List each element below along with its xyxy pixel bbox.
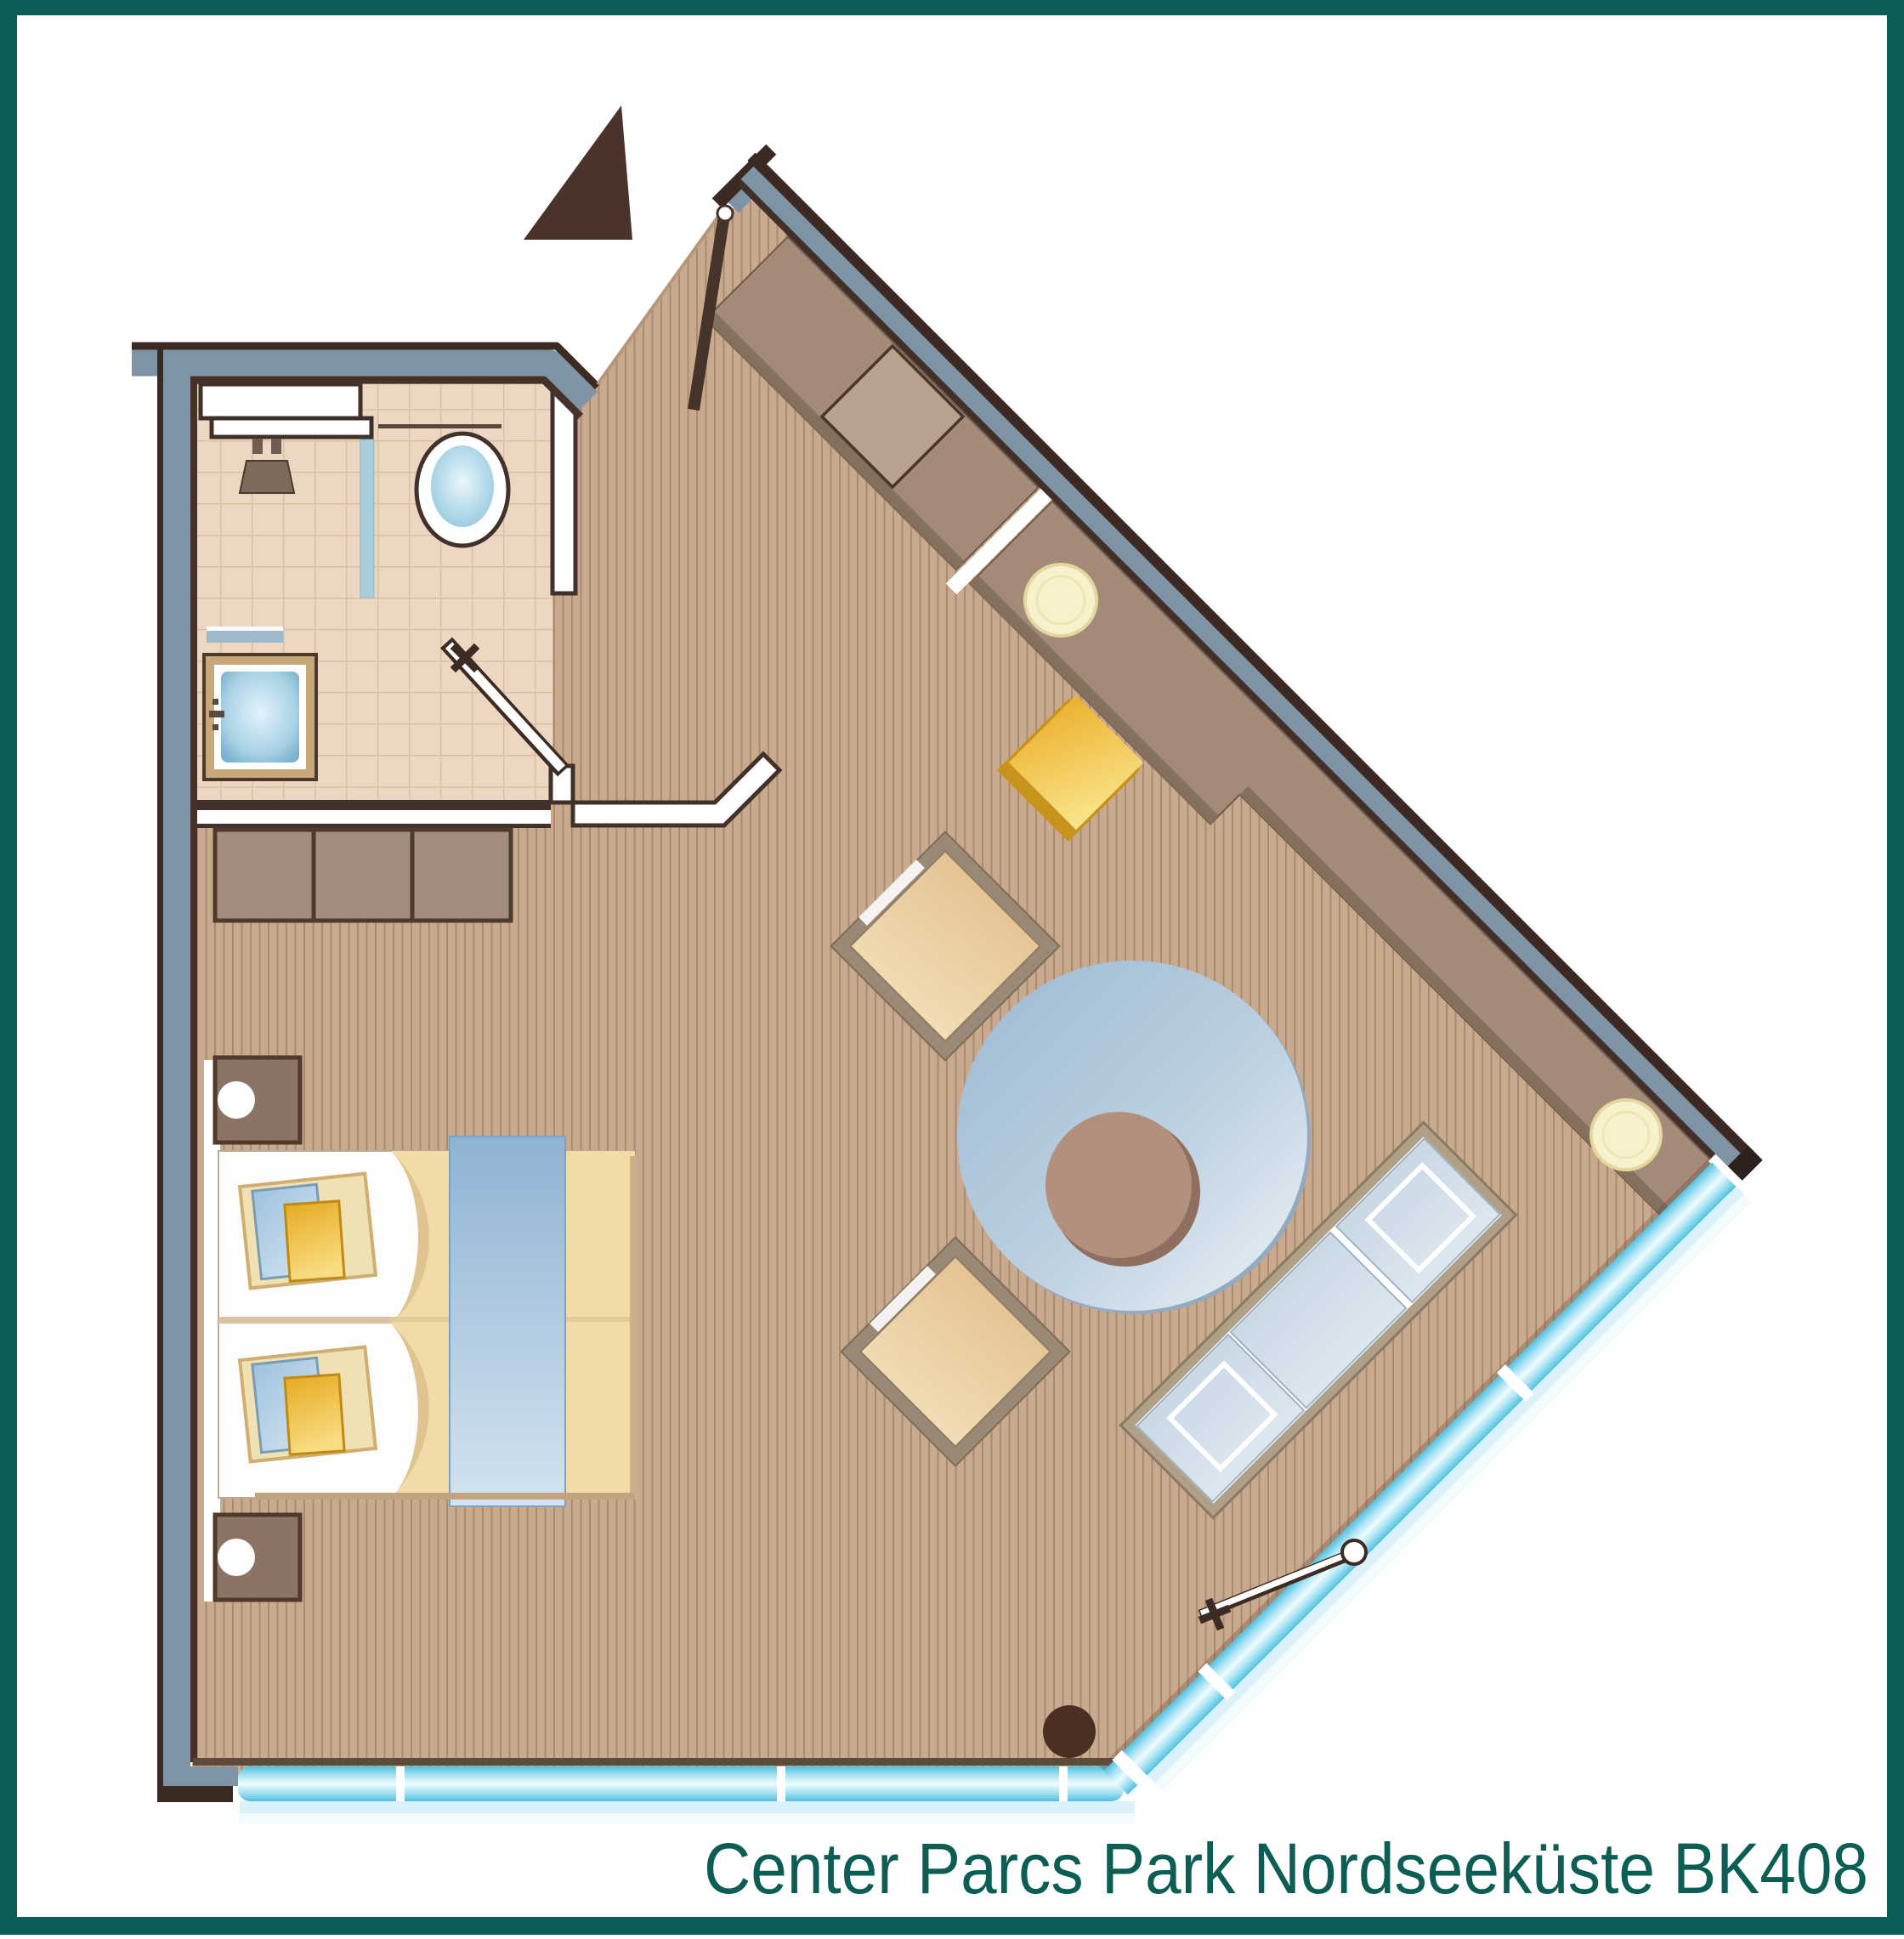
svg-text:Center Parcs Park Nordseeküste: Center Parcs Park Nordseeküste BK408: [704, 1828, 1868, 1908]
